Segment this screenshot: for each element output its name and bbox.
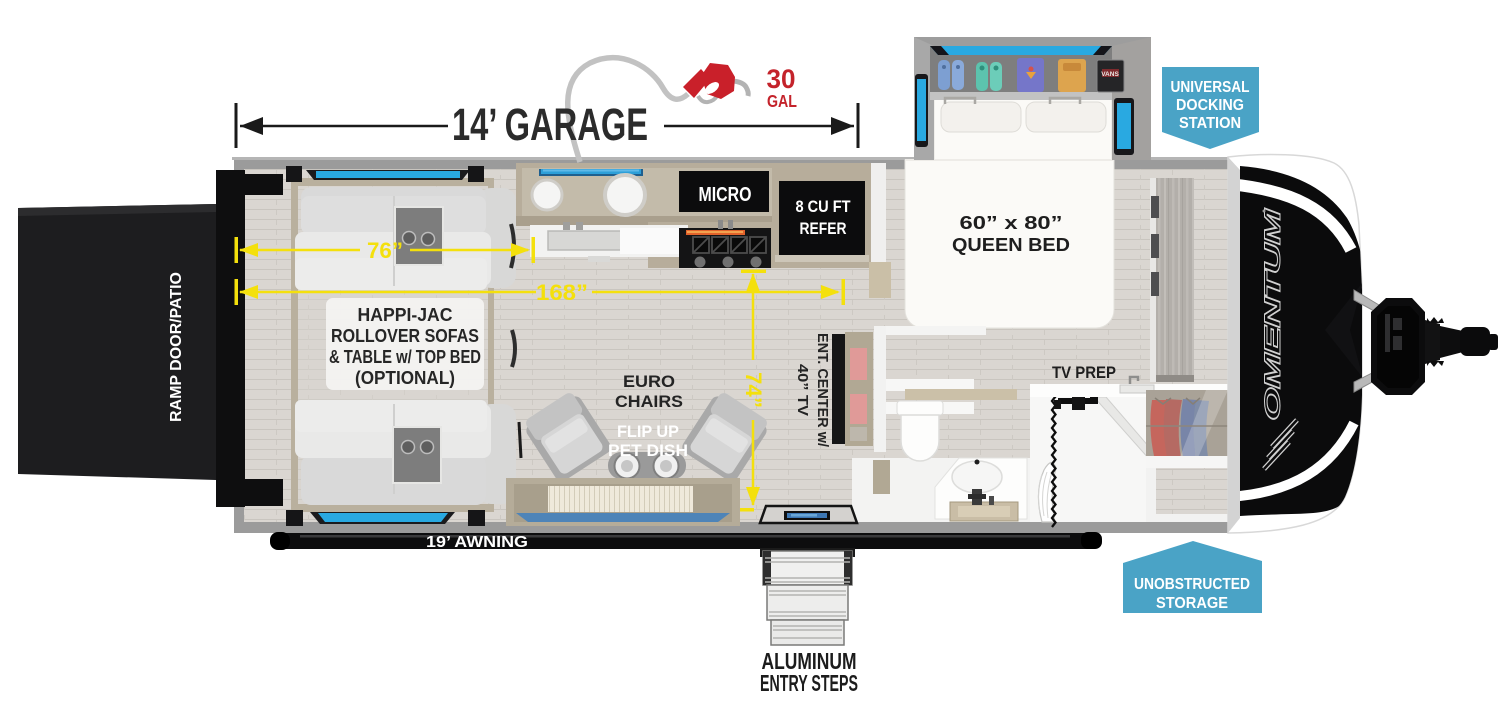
svg-text:8 CU FT: 8 CU FT — [796, 197, 852, 216]
svg-text:19’ AWNING: 19’ AWNING — [426, 534, 528, 551]
svg-text:UNIVERSAL: UNIVERSAL — [1171, 79, 1250, 96]
svg-text:ENT. CENTER w/: ENT. CENTER w/ — [814, 333, 830, 447]
svg-text:DOCKING: DOCKING — [1176, 97, 1244, 114]
svg-text:UNOBSTRUCTED: UNOBSTRUCTED — [1134, 576, 1250, 593]
svg-text:HAPPI-JAC: HAPPI-JAC — [358, 304, 453, 325]
svg-text:GAL: GAL — [767, 91, 797, 111]
svg-text:ENTRY STEPS: ENTRY STEPS — [760, 670, 858, 696]
svg-text:60” x 80”: 60” x 80” — [960, 212, 1063, 233]
svg-text:14’ GARAGE: 14’ GARAGE — [452, 99, 648, 150]
svg-text:MICRO: MICRO — [699, 184, 752, 206]
svg-text:QUEEN BED: QUEEN BED — [952, 234, 1070, 255]
svg-text:STATION: STATION — [1179, 115, 1241, 132]
svg-text:76”: 76” — [367, 238, 403, 263]
svg-text:PET DISH: PET DISH — [608, 442, 688, 460]
svg-text:VANS: VANS — [1101, 71, 1119, 78]
svg-text:40” TV: 40” TV — [794, 364, 810, 416]
svg-text:OMENTUM: OMENTUM — [1260, 207, 1285, 421]
svg-text:FLIP UP: FLIP UP — [617, 423, 679, 441]
svg-text:STORAGE: STORAGE — [1156, 595, 1228, 612]
svg-text:168”: 168” — [536, 280, 588, 305]
svg-text:30: 30 — [767, 64, 796, 94]
svg-text:(OPTIONAL): (OPTIONAL) — [355, 367, 455, 388]
svg-text:RAMP DOOR/PATIO: RAMP DOOR/PATIO — [168, 272, 185, 422]
svg-text:REFER: REFER — [800, 219, 847, 238]
svg-text:CHAIRS: CHAIRS — [615, 393, 683, 411]
svg-text:& TABLE w/ TOP BED: & TABLE w/ TOP BED — [329, 346, 481, 367]
svg-text:74”: 74” — [741, 372, 766, 408]
svg-text:TV PREP: TV PREP — [1052, 363, 1116, 382]
svg-text:EURO: EURO — [623, 373, 675, 391]
svg-text:ROLLOVER SOFAS: ROLLOVER SOFAS — [331, 325, 479, 346]
